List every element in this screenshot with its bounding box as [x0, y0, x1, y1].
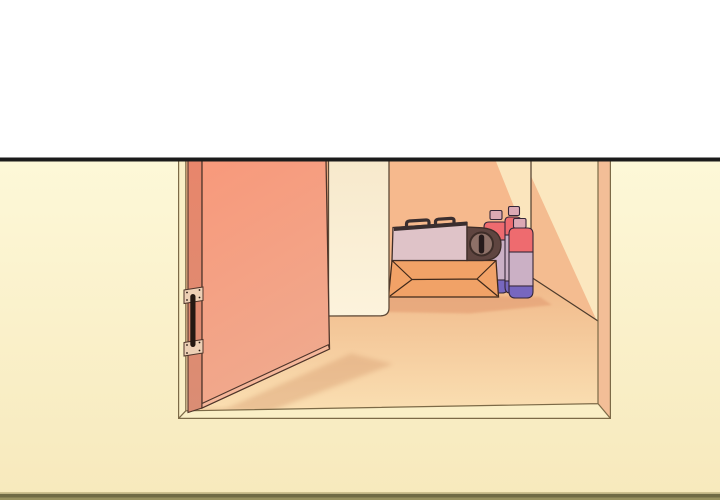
- cardboard-box: [389, 261, 499, 298]
- canister-cap: [509, 207, 520, 216]
- hinge-pin: [190, 294, 195, 347]
- bottom-border-light-line: [0, 492, 720, 494]
- page-bottom-border: [0, 492, 720, 500]
- page-top-white-band: [0, 0, 720, 160]
- canister-cap: [514, 219, 527, 229]
- gas-canister-front: [509, 219, 533, 299]
- bottom-border-dark-line: [0, 494, 720, 498]
- leaning-white-panel: [329, 159, 390, 316]
- canister-red-top: [509, 228, 533, 252]
- frame-right-jamb: [598, 159, 611, 419]
- door-edge-face: [188, 159, 202, 413]
- canister-cap: [490, 211, 502, 220]
- panel-top-ink-line: [0, 158, 720, 162]
- stove-knob-slot: [479, 235, 484, 254]
- canister-body: [509, 252, 533, 286]
- scene-illustration: [0, 0, 720, 500]
- canister-purple-base: [509, 286, 533, 298]
